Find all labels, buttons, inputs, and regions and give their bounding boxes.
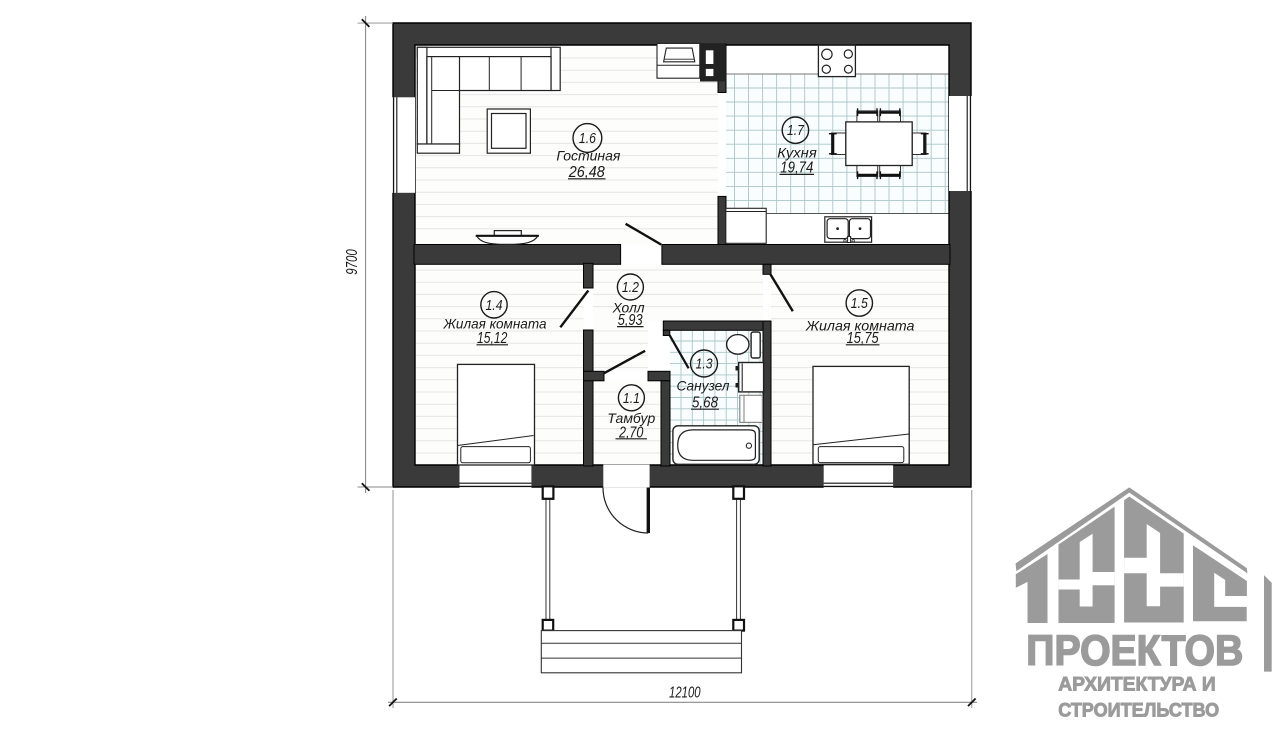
svg-text:12100: 12100 — [669, 685, 701, 702]
svg-text:1.2: 1.2 — [622, 280, 639, 296]
svg-text:Жилая комната: Жилая комната — [443, 315, 547, 331]
svg-text:ПРОЕКТОВ: ПРОЕКТОВ — [1026, 627, 1243, 675]
svg-text:1.5: 1.5 — [851, 296, 869, 312]
svg-text:1.1: 1.1 — [623, 391, 640, 407]
svg-text:Гостиная: Гостиная — [556, 148, 621, 164]
svg-text:1.3: 1.3 — [696, 357, 713, 373]
svg-text:СТРОИТЕЛЬСТВО: СТРОИТЕЛЬСТВО — [1058, 699, 1219, 721]
svg-text:Кухня: Кухня — [777, 145, 817, 161]
svg-text:Санузел: Санузел — [677, 378, 730, 394]
svg-text:1.4: 1.4 — [486, 298, 503, 314]
svg-text:1.6: 1.6 — [579, 131, 597, 147]
svg-text:9700: 9700 — [344, 249, 361, 275]
svg-text:1.7: 1.7 — [787, 123, 805, 139]
svg-text:АРХИТЕКТУРА И: АРХИТЕКТУРА И — [1058, 674, 1216, 696]
